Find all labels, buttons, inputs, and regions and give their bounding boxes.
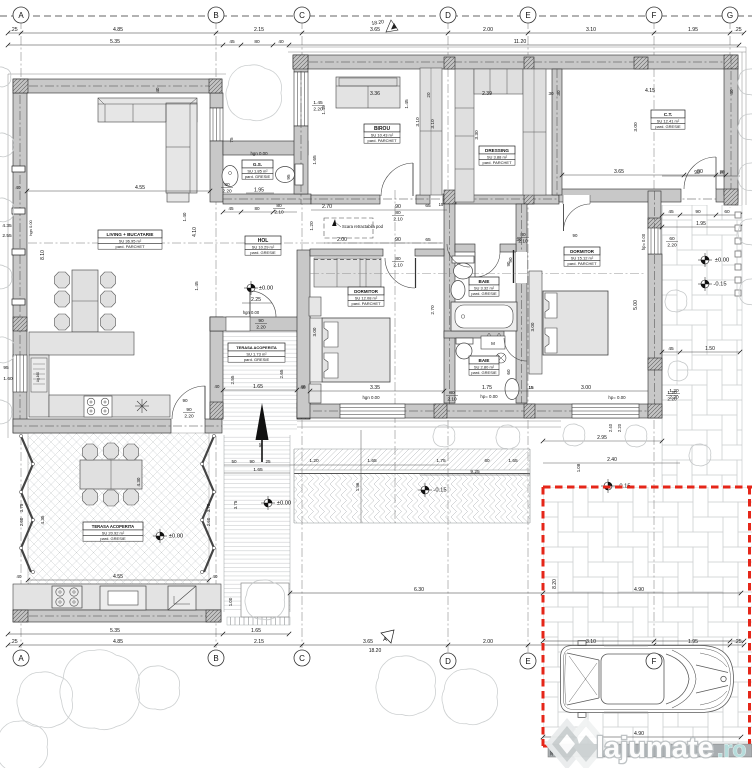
svg-text:4.85: 4.85	[113, 639, 123, 645]
svg-text:2.00: 2.00	[337, 237, 347, 243]
svg-text:15: 15	[528, 385, 534, 390]
svg-text:2.60: 2.60	[206, 517, 211, 526]
svg-text:hgn 0.00: hgn 0.00	[243, 310, 260, 315]
svg-text:5.35: 5.35	[110, 628, 120, 634]
svg-text:45: 45	[228, 206, 234, 211]
svg-text:4.30: 4.30	[136, 477, 141, 486]
svg-text:40: 40	[213, 574, 218, 579]
svg-text:D: D	[445, 11, 451, 20]
svg-text:D: D	[445, 657, 451, 666]
svg-text:90: 90	[249, 459, 255, 464]
svg-text:3.10: 3.10	[415, 117, 421, 127]
svg-text:80: 80	[224, 182, 230, 188]
svg-text:9.25: 9.25	[470, 469, 480, 475]
svg-text:pard. GRESIE: pard. GRESIE	[245, 174, 271, 179]
svg-text:pard. GRESIE: pard. GRESIE	[471, 291, 497, 296]
svg-text:.25: .25	[734, 639, 741, 645]
svg-text:3.65: 3.65	[370, 27, 380, 33]
svg-text:80: 80	[276, 203, 282, 209]
svg-text:±0.00: ±0.00	[277, 501, 291, 507]
svg-text:±0.00: ±0.00	[169, 534, 183, 540]
svg-text:SU 10.43 m²: SU 10.43 m²	[371, 132, 394, 137]
svg-text:2.20: 2.20	[184, 414, 194, 420]
svg-text:hgn 0.00: hgn 0.00	[250, 151, 268, 156]
svg-text:40: 40	[15, 185, 21, 190]
svg-text:HOL: HOL	[258, 238, 269, 244]
svg-text:F: F	[652, 657, 657, 666]
svg-text:SU 10.29 m²: SU 10.29 m²	[252, 244, 275, 249]
svg-text:M: M	[491, 341, 495, 346]
svg-text:1.20: 1.20	[669, 388, 679, 394]
svg-text:3.75: 3.75	[206, 503, 211, 512]
svg-text:5.00: 5.00	[633, 300, 639, 310]
svg-text:3.10: 3.10	[430, 119, 436, 129]
svg-text:1.95: 1.95	[696, 221, 706, 227]
svg-text:DORMITOR: DORMITOR	[354, 289, 379, 294]
svg-text:90: 90	[395, 204, 401, 210]
svg-text:1.95: 1.95	[688, 639, 698, 645]
svg-text:1.45: 1.45	[194, 281, 200, 291]
svg-text:8.10: 8.10	[40, 250, 46, 260]
svg-text:2.10: 2.10	[393, 217, 403, 223]
svg-text:pard. PARCHET: pard. PARCHET	[115, 244, 145, 249]
svg-text:90: 90	[182, 398, 188, 403]
svg-text:.25: .25	[10, 639, 17, 645]
svg-text:11.20: 11.20	[514, 39, 527, 45]
svg-text:3.10: 3.10	[586, 27, 596, 33]
svg-text:1.20: 1.20	[309, 458, 319, 464]
svg-text:40: 40	[301, 384, 306, 389]
svg-text:90: 90	[395, 237, 401, 243]
svg-text:3.75: 3.75	[233, 500, 238, 509]
svg-text:40: 40	[215, 384, 220, 389]
svg-text:pard. PARCHET: pard. PARCHET	[367, 138, 397, 143]
svg-text:4.35: 4.35	[40, 515, 45, 524]
svg-text:3.00: 3.00	[530, 322, 535, 331]
svg-text:C.T.: C.T.	[664, 112, 673, 118]
svg-text:5.35: 5.35	[110, 39, 120, 45]
svg-text:80: 80	[395, 210, 401, 216]
svg-text:2.10: 2.10	[447, 397, 457, 403]
svg-text:20: 20	[426, 92, 431, 98]
svg-text:1.50: 1.50	[705, 346, 715, 352]
svg-text:SU 3.32 m²: SU 3.32 m²	[474, 285, 495, 290]
svg-text:3.00: 3.00	[312, 327, 317, 336]
svg-text:2.40: 2.40	[608, 423, 613, 432]
svg-text:40: 40	[155, 87, 160, 92]
svg-text:SU 3.88 m²: SU 3.88 m²	[487, 154, 508, 159]
svg-text:.25: .25	[10, 27, 17, 33]
svg-text:SU 2.80 m²: SU 2.80 m²	[474, 364, 495, 369]
svg-text:6.30: 6.30	[414, 587, 424, 593]
svg-text:SU 36.95 m²: SU 36.95 m²	[119, 238, 142, 243]
svg-text:45: 45	[668, 209, 674, 215]
svg-text:A: A	[383, 637, 387, 643]
svg-text:-0.15: -0.15	[713, 282, 726, 288]
svg-text:C: C	[299, 654, 305, 663]
svg-text:2.20: 2.20	[617, 423, 622, 432]
svg-text:2.15: 2.15	[254, 639, 264, 645]
svg-text:2.20: 2.20	[667, 243, 677, 249]
svg-text:4.85: 4.85	[113, 27, 123, 33]
svg-text:B: B	[213, 654, 218, 663]
svg-text:90: 90	[258, 318, 264, 324]
svg-text:BAIE: BAIE	[479, 279, 490, 284]
svg-text:pard. GRESIE: pard. GRESIE	[244, 357, 270, 362]
svg-text:SU 12.08 m²: SU 12.08 m²	[355, 295, 378, 300]
svg-text:40: 40	[729, 89, 734, 95]
svg-text:45: 45	[229, 39, 235, 45]
svg-text:pard. PARCHET: pard. PARCHET	[351, 301, 381, 306]
svg-text:40: 40	[17, 574, 22, 579]
svg-text:1.08: 1.08	[576, 463, 581, 472]
svg-text:SU 1.73 m²: SU 1.73 m²	[246, 351, 267, 356]
svg-text:90: 90	[508, 257, 513, 263]
svg-text:-0.15: -0.15	[433, 488, 446, 494]
svg-text:2.70: 2.70	[430, 305, 436, 315]
svg-text:1.45: 1.45	[313, 100, 323, 106]
svg-text:2.55: 2.55	[2, 233, 12, 239]
svg-text:SU 20.92 m²: SU 20.92 m²	[102, 530, 125, 535]
svg-text:60: 60	[484, 458, 490, 463]
svg-text:2.39: 2.39	[482, 91, 492, 97]
svg-text:pard. GRESIE: pard. GRESIE	[250, 250, 276, 255]
svg-text:1.65: 1.65	[251, 628, 261, 634]
svg-text:4.10: 4.10	[192, 227, 198, 237]
svg-text:1.65: 1.65	[367, 458, 377, 464]
svg-text:1.65: 1.65	[253, 467, 263, 473]
svg-text:2.10: 2.10	[393, 263, 403, 269]
svg-text:65: 65	[425, 203, 431, 209]
svg-text:3.00: 3.00	[581, 385, 591, 391]
svg-text:1.40: 1.40	[182, 212, 187, 221]
svg-text:20: 20	[719, 170, 725, 175]
svg-text:.ro: .ro	[717, 736, 746, 762]
svg-text:TERASA ACOPERITA: TERASA ACOPERITA	[92, 524, 134, 529]
svg-text:65: 65	[425, 237, 431, 243]
svg-text:90: 90	[186, 407, 192, 413]
svg-text:2.25: 2.25	[251, 297, 261, 303]
svg-text:2.60: 2.60	[19, 517, 24, 526]
svg-text:90: 90	[573, 233, 578, 238]
svg-text:1.65: 1.65	[508, 458, 518, 464]
svg-text:45: 45	[668, 346, 674, 352]
svg-text:E: E	[525, 657, 530, 666]
svg-text:1.75: 1.75	[482, 385, 492, 391]
svg-text:1.75: 1.75	[436, 458, 446, 464]
svg-text:4.90: 4.90	[634, 587, 644, 593]
svg-text:SU 15.12 m²: SU 15.12 m²	[571, 255, 594, 260]
svg-text:15: 15	[439, 202, 444, 207]
svg-text:80: 80	[254, 206, 260, 211]
svg-text:DRESSING: DRESSING	[485, 148, 509, 153]
svg-text:40: 40	[278, 39, 284, 45]
svg-text:B: B	[213, 11, 218, 20]
svg-text:2.10: 2.10	[274, 210, 284, 216]
svg-text:2.40: 2.40	[607, 457, 617, 463]
svg-text:95: 95	[286, 174, 291, 180]
svg-text:3.65: 3.65	[614, 169, 624, 175]
svg-text:60: 60	[506, 369, 511, 375]
svg-text:G.S.: G.S.	[253, 162, 262, 167]
svg-text:SU 1.85 m²: SU 1.85 m²	[247, 168, 268, 173]
svg-text:3.36: 3.36	[370, 91, 380, 97]
svg-text:2.20: 2.20	[222, 189, 232, 195]
svg-text:BAIE: BAIE	[479, 358, 490, 363]
svg-text:2.10: 2.10	[518, 239, 528, 245]
svg-text:1.45: 1.45	[321, 105, 327, 115]
svg-text:2.15: 2.15	[254, 27, 264, 33]
svg-text:2.00: 2.00	[483, 639, 493, 645]
svg-text:90: 90	[694, 170, 700, 176]
svg-text:BIROU: BIROU	[374, 126, 391, 132]
svg-text:4.55: 4.55	[135, 185, 145, 191]
svg-text:A: A	[18, 11, 24, 20]
svg-text:Scara retractabila pod: Scara retractabila pod	[342, 224, 384, 229]
svg-text:lajumate: lajumate	[596, 732, 714, 764]
svg-text:2.20: 2.20	[256, 325, 266, 331]
svg-text:95: 95	[3, 365, 9, 371]
svg-text:E: E	[525, 11, 530, 20]
svg-text:90: 90	[695, 209, 701, 215]
svg-text:.25: .25	[734, 27, 741, 33]
svg-text:pard. GRESIE: pard. GRESIE	[100, 536, 126, 541]
svg-text:hgn 0.00: hgn 0.00	[362, 395, 380, 400]
svg-text:80: 80	[395, 256, 401, 262]
svg-text:3.75: 3.75	[19, 503, 24, 512]
svg-text:4.15: 4.15	[645, 88, 655, 94]
svg-text:2.65: 2.65	[279, 369, 284, 378]
svg-text:hgn 0.00: hgn 0.00	[28, 219, 33, 235]
svg-text:2.70: 2.70	[322, 204, 332, 210]
svg-text:pard. PARCHET: pard. PARCHET	[567, 261, 597, 266]
svg-text:75: 75	[229, 137, 234, 143]
svg-text:pard. GRESIE: pard. GRESIE	[471, 370, 497, 375]
svg-text:2.55: 2.55	[230, 375, 235, 384]
svg-text:2.95: 2.95	[597, 435, 607, 441]
svg-text:DORMITOR: DORMITOR	[570, 249, 595, 254]
svg-text:hp= 0.00: hp= 0.00	[641, 233, 646, 250]
svg-text:60: 60	[669, 236, 675, 242]
svg-text:LIVING + BUCATARIE: LIVING + BUCATARIE	[107, 232, 154, 237]
svg-text:Ag.160: Ag.160	[36, 372, 40, 382]
svg-text:18.20: 18.20	[369, 648, 382, 654]
svg-text:3.65: 3.65	[363, 639, 373, 645]
svg-text:3.10: 3.10	[586, 639, 596, 645]
svg-text:±0.00: ±0.00	[715, 258, 729, 264]
svg-text:SU 12.41 m²: SU 12.41 m²	[657, 118, 680, 123]
svg-text:hp= 0.00: hp= 0.00	[608, 395, 626, 400]
svg-text:pard. GRESIE: pard. GRESIE	[655, 124, 681, 129]
svg-text:1.45: 1.45	[404, 99, 410, 109]
svg-text:4.35: 4.35	[2, 223, 12, 229]
svg-text:hp= 0.00: hp= 0.00	[480, 394, 498, 399]
svg-text:2.00: 2.00	[483, 27, 493, 33]
svg-text:pard. PARCHET: pard. PARCHET	[482, 160, 512, 165]
svg-text:1.20: 1.20	[309, 221, 315, 231]
svg-text:90: 90	[258, 442, 263, 447]
svg-text:1.95: 1.95	[688, 27, 698, 33]
svg-text:C: C	[299, 11, 305, 20]
svg-text:4.55: 4.55	[113, 574, 123, 580]
svg-text:1.95: 1.95	[254, 188, 264, 194]
svg-text:F: F	[652, 11, 657, 20]
svg-text:1.65: 1.65	[253, 384, 263, 390]
svg-text:TERASA ACOPERITA: TERASA ACOPERITA	[236, 345, 277, 350]
svg-text:80: 80	[449, 390, 455, 396]
svg-text:25: 25	[265, 459, 271, 464]
svg-text:±0.00: ±0.00	[259, 286, 273, 292]
svg-text:A: A	[18, 654, 24, 663]
svg-text:2.20: 2.20	[669, 395, 679, 401]
svg-text:80: 80	[254, 39, 260, 45]
svg-text:3.30: 3.30	[474, 130, 480, 140]
svg-text:1.00: 1.00	[228, 597, 233, 606]
svg-text:G: G	[727, 11, 733, 20]
svg-text:3.35: 3.35	[370, 385, 380, 391]
svg-text:8.20: 8.20	[552, 579, 558, 589]
svg-text:1.65: 1.65	[312, 155, 318, 165]
svg-text:50: 50	[231, 459, 237, 464]
svg-text:3.00: 3.00	[633, 122, 639, 132]
svg-text:30: 30	[556, 90, 561, 96]
svg-text:30: 30	[548, 91, 554, 96]
svg-text:80: 80	[520, 232, 526, 238]
svg-text:1.60: 1.60	[3, 376, 13, 382]
svg-text:60: 60	[724, 209, 730, 215]
svg-text:1.96: 1.96	[355, 482, 360, 491]
